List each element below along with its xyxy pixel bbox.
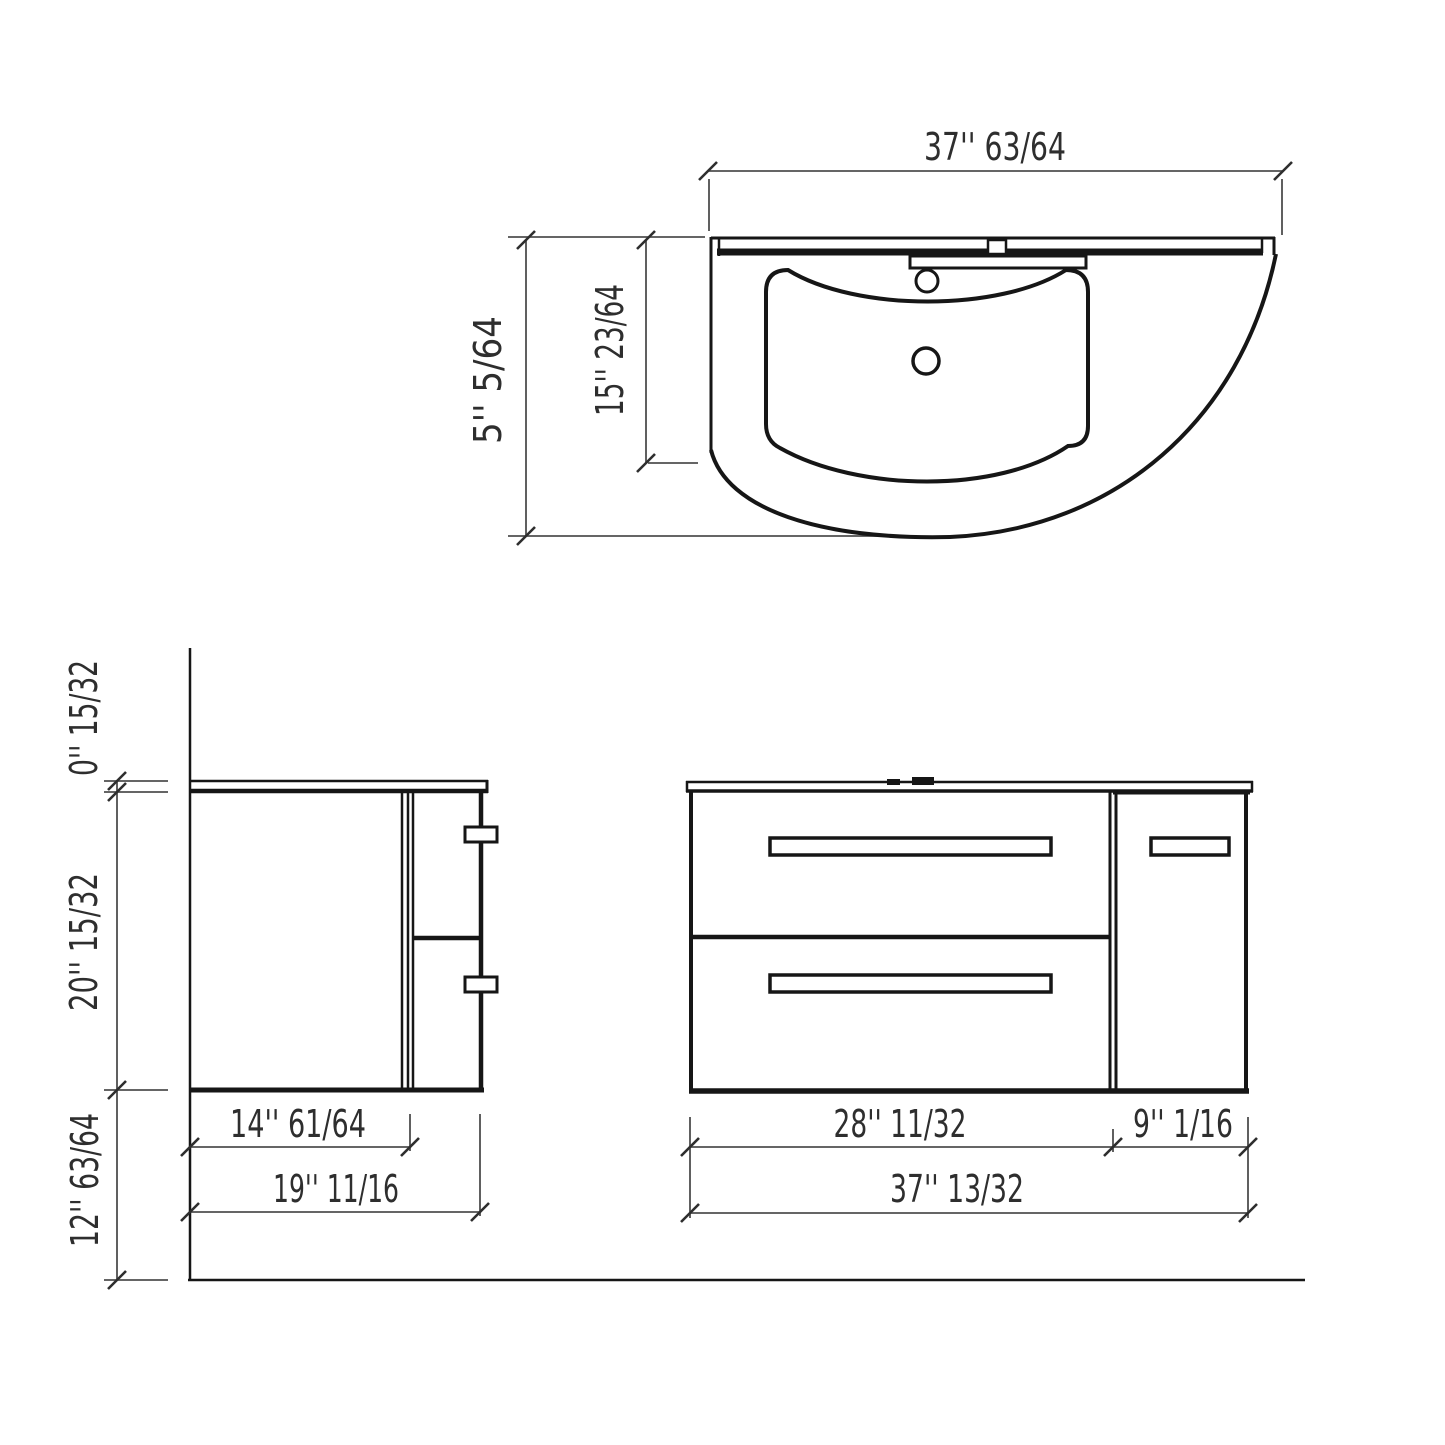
drain-hole: [913, 348, 939, 374]
top-view-countertop-outline: [711, 237, 1276, 537]
side-view: 0'' 15/32 20'' 15/32 12'' 63/64 14'' 61/…: [62, 660, 497, 1289]
side-view-depth-dimensions: 14'' 61/64 19'' 11/16: [181, 1102, 489, 1221]
drawer-handle-profile-top: [465, 827, 497, 842]
faucet-hole: [916, 270, 938, 292]
dim-label-overall-depth: 19'' 11/16: [273, 1167, 399, 1211]
dim-label-drawer-section-width: 28'' 11/32: [834, 1102, 967, 1146]
counter-center-notch: [988, 240, 1006, 254]
drawer-handle-bottom: [770, 975, 1051, 992]
drawing-canvas: 37'' 63/64 5'' 5/64 15'' 23/64: [0, 0, 1445, 1445]
dim-label-basin-depth: 15'' 23/64: [588, 284, 632, 416]
top-view-width-dimension: 37'' 63/64: [699, 125, 1292, 235]
door-handle: [1151, 838, 1229, 855]
vanity-technical-drawing: 37'' 63/64 5'' 5/64 15'' 23/64: [0, 0, 1445, 1445]
faucet-mark: [912, 777, 934, 785]
top-view: 37'' 63/64 5'' 5/64 15'' 23/64: [466, 125, 1292, 545]
dim-label-door-section-width: 9'' 1/16: [1133, 1102, 1233, 1146]
front-view: 28'' 11/32 9'' 1/16 37'' 13/32: [681, 777, 1257, 1222]
dim-label-cabinet-depth: 14'' 61/64: [230, 1102, 366, 1146]
top-view-basin-depth-dimension: 15'' 23/64: [588, 231, 698, 472]
dim-label-overall-depth: 5'' 5/64: [466, 316, 510, 444]
front-view-cabinet: [686, 777, 1253, 1091]
faucet-mark-small: [887, 779, 900, 785]
sink-basin-outline: [766, 270, 1088, 482]
dim-label-countertop-thickness: 0'' 15/32: [62, 660, 106, 776]
dim-label-top-width: 37'' 63/64: [924, 125, 1066, 169]
front-view-width-dimensions: 28'' 11/32 9'' 1/16 37'' 13/32: [681, 1102, 1257, 1222]
side-view-height-dimensions: 0'' 15/32 20'' 15/32 12'' 63/64: [62, 660, 168, 1289]
side-view-cabinet: [190, 780, 497, 1090]
dim-label-overall-width: 37'' 13/32: [890, 1167, 1024, 1211]
drawer-handle-profile-bottom: [465, 977, 497, 992]
dim-label-cabinet-height: 20'' 15/32: [62, 873, 106, 1011]
drawer-handle-top: [770, 838, 1051, 855]
dim-label-clearance-below: 12'' 63/64: [63, 1113, 107, 1247]
faucet-deck: [910, 256, 1086, 268]
top-view-depth-dimension: 5'' 5/64: [466, 231, 906, 545]
